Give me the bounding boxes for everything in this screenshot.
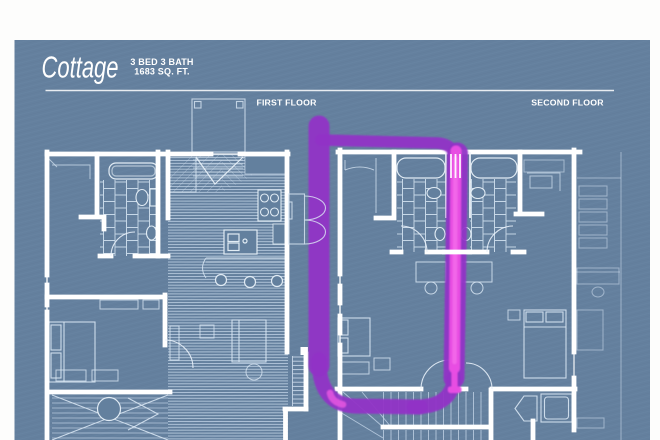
svg-text:FIRST FLOOR: FIRST FLOOR — [256, 98, 317, 108]
svg-text:3 BED 3 BATH: 3 BED 3 BATH — [130, 57, 193, 67]
svg-text:Cottage: Cottage — [42, 50, 119, 85]
svg-text:SECOND FLOOR: SECOND FLOOR — [531, 98, 604, 108]
svg-text:1683 SQ. FT.: 1683 SQ. FT. — [134, 67, 189, 77]
